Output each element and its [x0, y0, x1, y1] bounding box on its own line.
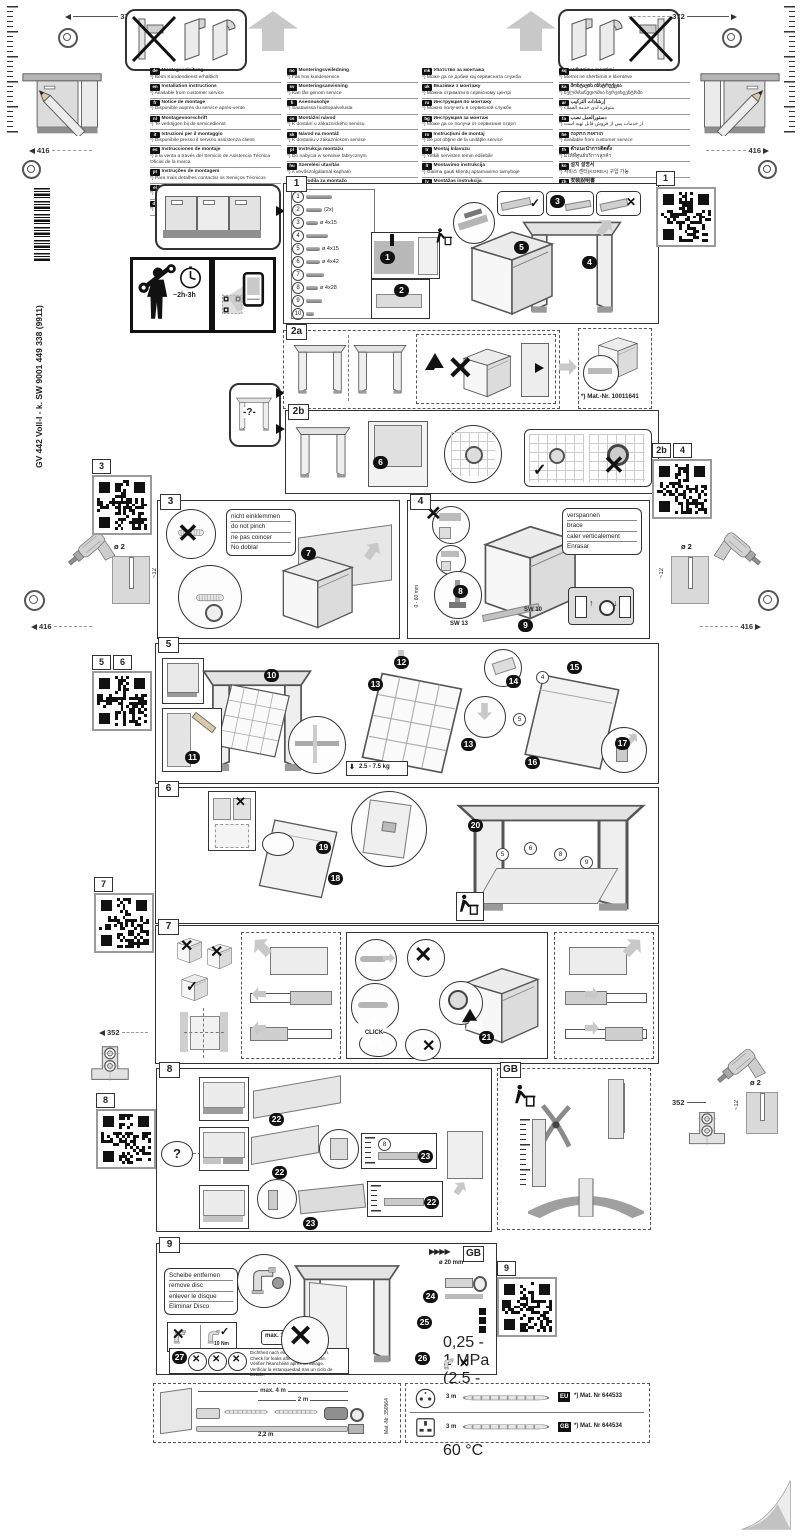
note-line: remove disc: [169, 1281, 233, 1291]
language-entry: itIstruzioni per il montaggio*) Disponib…: [150, 130, 281, 146]
screw-proud-wrong: ✕: [589, 434, 645, 482]
crossed-bracket-sketch: [131, 15, 177, 63]
open-door-sketch: [476, 868, 619, 904]
part-ref-circle: 8: [554, 848, 567, 861]
bracket-detail-circle: [319, 1129, 359, 1169]
qr-finder-pattern: [502, 1282, 517, 1297]
hose-end-fitting: [348, 1424, 364, 1434]
panel-weight-label: 2.5 - 7.5 kg: [359, 764, 390, 770]
cabinet-variants-sketch: ✕ ✕ ✓: [174, 934, 234, 1004]
language-title: Instrucţiuni de montaj: [434, 132, 485, 137]
strip-detail-circle: [453, 202, 495, 244]
strip-part-sketch: [608, 1079, 624, 1139]
qr-label-8: 8: [96, 1093, 115, 1108]
language-title: Инструкция по монтажу: [434, 100, 492, 105]
plinth-rail-sketch: [253, 1075, 341, 1119]
do-not-pinch-note: nicht einklemmendo not pinchne pas coinc…: [226, 509, 296, 556]
language-entry: fiAsennusohje*) Saatavissa huoltopalvelu…: [287, 99, 418, 115]
note-line: brace: [567, 521, 637, 531]
action-badge: 25: [417, 1316, 432, 1329]
language-flag: lt: [422, 163, 432, 170]
qr-finder-pattern: [101, 1149, 116, 1164]
qr-finder-pattern: [537, 1282, 552, 1297]
note-line: Enrasar: [567, 542, 637, 551]
ar-app-box: [212, 257, 276, 333]
part-spec: (2x): [324, 207, 333, 213]
part-ref-circle: 6: [524, 842, 537, 855]
note-line: Scheibe entfernen: [169, 1271, 233, 1281]
action-badge: 13: [368, 678, 383, 691]
language-entry: mkУпатство за монтажа*) Може да се добие…: [422, 67, 553, 83]
qr-label-9: 9: [497, 1261, 516, 1276]
step2a-result-box: *) Mat.-Nr. 10011641: [578, 328, 652, 409]
side-fix-left-box: [241, 932, 341, 1059]
language-entry: noMonteringsveiledning*) Fås hos kundese…: [287, 67, 418, 83]
language-title: Montagevoorschrift: [162, 116, 208, 121]
remove-disc-note: Scheibe entfernenremove discenlever le d…: [164, 1268, 238, 1315]
barcode: [34, 188, 50, 262]
language-note: *) Можна отримати в сервісному центрі: [422, 91, 553, 97]
qr-code: [96, 1109, 156, 1169]
part-icon: [306, 312, 314, 316]
language-note: *) Beim Kundendienst erhältlich: [150, 75, 281, 81]
mat-nr-label: *) Mat. Nr 644534: [574, 1423, 622, 1429]
dim-416-bottom-right: 416: [700, 622, 764, 631]
action-badge: 3: [550, 195, 565, 208]
step8-box: ? 22 22 8 23: [156, 1068, 492, 1232]
ruler-measure-box-1: 8 23: [361, 1133, 437, 1169]
part-ref-circle: 9: [580, 856, 593, 869]
language-note: *) Saatavissa huoltopalvelusta: [287, 106, 418, 112]
clamp-step-icon: [479, 1317, 486, 1324]
arrow-right-icon: [535, 363, 549, 373]
part-spec: ø 4x28: [320, 285, 337, 291]
action-badge: 11: [185, 751, 200, 764]
qr-code: [497, 1277, 557, 1337]
language-title: Installation instructions: [162, 84, 217, 89]
panel-profiles-sketch: [179, 16, 239, 62]
language-title: Udhëzime montimi: [571, 68, 614, 73]
step5-box: 10 11 12 13 13 ⬇ 2.5 - 7.5 kg 14 15 4 5 …: [155, 643, 659, 784]
action-badge: 10: [264, 669, 279, 682]
action-badge: 27: [172, 1351, 187, 1364]
qr-finder-pattern: [97, 480, 112, 495]
language-flag: no: [287, 68, 297, 75]
language-title: Montaj kılavuzu: [434, 147, 470, 152]
cross-icon: ✕: [288, 1319, 313, 1354]
hook-ellipse-detail: [262, 832, 294, 856]
language-flag: uk: [422, 84, 432, 91]
kitchen-variant-1: [199, 1077, 249, 1121]
qr-finder-pattern: [502, 1317, 517, 1332]
door-adjust-icon-box: ↑ ↓: [568, 587, 634, 625]
action-badge: 9: [518, 619, 533, 632]
installation-time-box: ~2h-3h: [130, 257, 212, 333]
step8-tag: 8: [159, 1062, 180, 1078]
language-title: Monteringsveiledning: [299, 68, 350, 73]
template-pencil-box: 11: [162, 708, 222, 772]
language-title: Szerelési utasítás: [299, 163, 340, 168]
part-row: 9: [292, 294, 374, 307]
foot-range-label: 0 - 60 mm: [414, 585, 420, 608]
action-badge: 21: [479, 1031, 494, 1044]
cross-icon: ✕: [626, 195, 636, 209]
language-flag: hu: [287, 163, 297, 170]
dishwasher-iso-sketch: [270, 545, 362, 631]
check-icon: ✓: [530, 196, 540, 210]
language-title: Asennusohje: [299, 100, 330, 105]
step4-tag: 4: [410, 494, 431, 510]
qr-code: [92, 475, 152, 535]
fast-forward-icon: ▶▶▶▶: [429, 1247, 450, 1256]
product-code: GV 442 Voll-I - k. SW 9001 449 338 (9911…: [34, 268, 44, 468]
hole-depth-label: ~12: [659, 568, 665, 578]
note-line: verspannen: [567, 511, 637, 521]
part-number: 6: [292, 256, 304, 268]
corrugated-hose-icon: [224, 1404, 268, 1420]
qr-label-2b: 2b: [652, 443, 671, 458]
part-number: 4: [292, 230, 304, 242]
note-line: do not pinch: [231, 522, 291, 532]
warning-triangle-icon: !: [425, 343, 445, 370]
cross-icon: ✕: [210, 942, 223, 962]
crossed-bracket-sketch: [628, 15, 674, 63]
brace-note: verspannenbracecaler verticalementEnrasa…: [562, 508, 642, 555]
check-icon: ✓: [186, 978, 198, 995]
language-title: Instruções de montagem: [162, 169, 220, 174]
cross-icon: ✕: [177, 520, 199, 546]
qr-finder-pattern: [136, 1114, 151, 1129]
language-title: دستورالعمل نصب: [571, 116, 607, 121]
step5-tag: 5: [158, 637, 179, 653]
language-entry: enInstallation instructions*) Available …: [150, 83, 281, 99]
hole-diameter-label: ø 2: [114, 542, 125, 551]
action-badge: 19: [316, 841, 331, 854]
step1-box: 12(2x)3ø 4x1545ø 4x156ø 4x4278ø 4x28910 …: [283, 183, 659, 324]
front-alignment-sketch: [180, 1008, 228, 1058]
qr-label-3: 3: [92, 459, 111, 474]
arrow-up-left: [248, 11, 298, 51]
screw-detail-circle: [444, 425, 502, 483]
part-row: 2(2x): [292, 203, 374, 216]
qr-finder-pattern: [134, 898, 149, 913]
drain-extension-box: max. 4 m 2 m 2,2 m Mat.-Nr. 350564: [153, 1383, 401, 1443]
action-badge: 5: [514, 241, 529, 254]
drill-hole-mark: [58, 28, 78, 48]
qr-finder-pattern: [696, 192, 711, 207]
hose-cross-circle: ✕: [281, 1316, 329, 1364]
hinge-bracket-sketch: [86, 1040, 134, 1088]
language-note: *) Disponibile presso il servizio assist…: [150, 138, 281, 144]
part-row: 4: [292, 229, 374, 242]
hinge-bracket-sketch: [684, 1106, 730, 1152]
part-spec: ø 4x15: [322, 246, 339, 252]
language-title: Monteringsanvisning: [299, 84, 348, 89]
qr-code: [94, 893, 154, 953]
language-entry: ltMontavimo instrukcija*) Galima gauti k…: [422, 162, 553, 178]
arrow-down-icon: [477, 703, 492, 720]
page-curl: [734, 1476, 798, 1534]
language-flag: mk: [422, 68, 432, 75]
hose-length-label: 2,2 m: [258, 1432, 273, 1438]
part-number: 10: [292, 308, 304, 320]
language-entry: ukВказівки з монтажу*) Можна отримати в …: [422, 83, 553, 99]
clip-detail-circle: [257, 1179, 297, 1219]
part-row: 6ø 4x42: [292, 255, 374, 268]
part-row: 10: [292, 307, 374, 320]
language-note: *) Можно получить в сервисной службе: [422, 106, 553, 112]
detail-strip-apply: 1: [371, 232, 440, 279]
language-flag: ko: [559, 163, 569, 170]
clamp-step-icon: [479, 1326, 486, 1333]
wrong-clip-circle: ✕: [405, 1029, 441, 1061]
region-badge: GB: [558, 1422, 571, 1432]
action-badge: 26: [415, 1352, 430, 1365]
part-icon: [306, 234, 328, 238]
language-entry: csMontážní návod*) K dostání u zákaznick…: [287, 115, 418, 131]
note-line: No doblar: [231, 543, 291, 552]
hose-connector-sketch: [196, 1408, 220, 1419]
check-icon: ✓: [220, 1325, 229, 1338]
niche-question-box: -?-: [229, 383, 281, 447]
strip-screw-box: 3: [546, 191, 594, 216]
torque-ok-label: 10 Nm: [214, 1341, 229, 1347]
action-badge: 13: [461, 738, 476, 751]
language-entry: ruИнструкция по монтажу*) Можно получить…: [422, 99, 553, 115]
language-title: Návod na montáž: [299, 132, 340, 137]
part-row: 7: [292, 268, 374, 281]
drain-connection-sketch: [441, 1270, 491, 1306]
question-label: -?-: [243, 407, 256, 418]
language-title: Montážní návod: [299, 116, 336, 121]
language-entry: faدستورالعمل نصب*) از خدمات پس از فروش ق…: [559, 115, 690, 131]
qr-finder-pattern: [657, 464, 672, 479]
kitchen-variant-3: [199, 1185, 249, 1229]
warning-triangle-icon: !: [462, 1001, 478, 1023]
kitchen-overview-box: [155, 184, 281, 250]
language-entry: skNávod na montáž*) K dostaniu v zákazní…: [287, 130, 418, 146]
panel-weight-box: ⬇ 2.5 - 7.5 kg: [346, 761, 408, 776]
arrow-right-icon: [559, 359, 577, 375]
language-note: *) available from customer service: [559, 138, 690, 144]
cross-icon: ✕: [172, 1325, 185, 1343]
part-spec: ø 4x42: [322, 259, 339, 265]
qr-label-4: 4: [673, 443, 692, 458]
note-line: caler verticalement: [567, 532, 637, 542]
qr-step7: 7: [94, 874, 154, 953]
hole-depth-label: ~12: [734, 1100, 740, 1110]
template-grid-sketch: [214, 678, 294, 762]
wrench-size-label: SW 13: [450, 621, 468, 627]
action-badge: 4: [582, 256, 597, 269]
qr-finder-pattern: [132, 676, 147, 691]
qr-step1: 1: [656, 168, 716, 247]
language-entry: trMontaj kılavuzu*) Yetkili servisten te…: [422, 146, 553, 162]
plinth-rail-sketch: [251, 1125, 319, 1165]
drill-hole-mark: [722, 28, 742, 48]
plinth-bracket-sketch: [298, 1184, 366, 1215]
screw-ok-wrong-box: ✓ ✕: [524, 429, 652, 487]
hinge-dim-cluster-left: 352: [84, 1028, 154, 1090]
plinth-panel-sketch: [447, 1131, 483, 1179]
language-note: *) Merret në shërbimin e klientëve: [559, 75, 690, 81]
action-badge: 17: [615, 737, 630, 750]
aerator-detail-circle: [237, 1254, 291, 1308]
power-cord-sketch: [462, 1388, 550, 1408]
language-flag: sv: [287, 84, 297, 91]
qr-finder-pattern: [97, 676, 112, 691]
action-badge: 12: [394, 656, 409, 669]
qr-code: [656, 187, 716, 247]
installation-manual-page: 372 372: [0, 0, 802, 1536]
action-badge: 14: [506, 675, 521, 688]
drill-hole-mark: [758, 590, 779, 611]
action-badge: 23: [303, 1217, 318, 1230]
part-row: 8ø 4x28: [292, 281, 374, 294]
qr-finder-pattern: [661, 192, 676, 207]
step2a-box: ! ✕: [283, 330, 560, 409]
part-icon: [306, 247, 320, 251]
cross-icon: ✕: [603, 450, 625, 481]
step3-tag: 3: [160, 494, 181, 510]
pinched-hose-warning-circle: ✕: [166, 509, 216, 559]
screw-position-detail-box: ✕: [208, 791, 256, 851]
qr-label-6: 6: [113, 655, 132, 670]
part-number: 7: [292, 269, 304, 281]
step2b-tag: 2b: [288, 404, 309, 420]
curved-plinth-sketch: [528, 1169, 644, 1223]
qr-code: [92, 671, 152, 731]
gb-tag: GB: [500, 1062, 521, 1078]
action-badge: 24: [423, 1290, 438, 1303]
dim-416-bottom-left: 416: [28, 622, 92, 631]
parts-list: 12(2x)3ø 4x1545ø 4x156ø 4x4278ø 4x28910: [291, 189, 375, 319]
front-panel-sketch: [256, 804, 342, 912]
language-note: *) Kan fås genom service: [287, 91, 418, 97]
mat-nr-label: Mat.-Nr. 350564: [384, 1392, 390, 1434]
language-flag: sq: [559, 68, 569, 75]
language-note: *) a la venta a través del Servicio de A…: [150, 154, 281, 166]
part-number: 9: [292, 295, 304, 307]
cord-length-label: 3 m: [446, 1394, 456, 1400]
ruler-measure-box-2: 22: [367, 1181, 443, 1217]
language-note: *) Fås hos kundeservice: [287, 75, 418, 81]
qr-finder-pattern: [99, 898, 114, 913]
mat-nr-label: *) Mat.-Nr. 10011641: [581, 393, 639, 400]
side-fix-center-box: ✕ ! CLICK ✕ 21: [346, 932, 548, 1059]
language-note: *) Available from customer service: [150, 91, 281, 97]
step9-box: ▶▶▶▶ GB Scheibe entfernenremove discenle…: [156, 1243, 497, 1375]
part-icon: [306, 260, 320, 264]
language-flag: ka: [559, 84, 569, 91]
language-flag: pt: [150, 169, 160, 176]
detail-strip-click: 2: [371, 279, 430, 319]
action-badge: 2: [394, 284, 409, 297]
part-icon: [306, 299, 322, 303]
drill-hole-mark: [758, 160, 777, 179]
check-icon: ✓: [533, 460, 546, 480]
part-ref-circle: 5: [496, 848, 509, 861]
language-note: *) Se pot obţine de la unităţile service: [422, 138, 553, 144]
hole-depth-sketch: [112, 556, 150, 604]
qr-finder-pattern: [692, 464, 707, 479]
strip-wrong-box: ✕: [596, 191, 641, 216]
language-flag: en: [150, 84, 160, 91]
step1-tag: 1: [286, 176, 307, 192]
language-entry: nlMontagevoorschrift*) Te verkrijgen bij…: [150, 115, 281, 131]
part-number: 3: [292, 217, 304, 229]
language-entry: roInstrucţiuni de montaj*) Se pot obţine…: [422, 130, 553, 146]
hole-depth-sketch: [746, 1092, 778, 1134]
qr-finder-pattern: [97, 515, 112, 530]
language-title: הוראות התקנה: [571, 132, 604, 137]
part-icon: [306, 273, 324, 277]
language-title: Instrucciones de montaje: [162, 147, 221, 152]
power-cord-box: 3 m EU *) Mat. Nr 644533 3 m GB *) Mat. …: [405, 1383, 650, 1443]
clock-icon: [179, 266, 202, 289]
language-entry: bgИнструкция за монтаж*) Може да се полу…: [422, 115, 553, 131]
language-title: Montageanleitung: [162, 68, 204, 73]
language-note: *) Yetkili servisten temin edilebilir: [422, 154, 553, 160]
drill-hole-mark: [24, 590, 45, 611]
qr-finder-pattern: [101, 1114, 116, 1129]
language-note: *) Може да се добие кај сервисната служб…: [422, 75, 553, 81]
gb-plinth-box: [497, 1068, 651, 1230]
side-fix-right-box: [554, 932, 654, 1059]
language-note: *) A vevőszolgálatnál kapható: [287, 170, 418, 176]
step7-tag: 7: [158, 919, 179, 935]
qr-step8: 8: [96, 1090, 156, 1169]
qr-finder-pattern: [99, 933, 114, 948]
part-number: 5: [292, 243, 304, 255]
hose-clamp-icon: [350, 1408, 364, 1422]
question-cloud: ?: [161, 1141, 193, 1167]
template-edge-circle: [288, 716, 346, 774]
note-line: Verificar la estanqueidad tras un ciclo …: [250, 1367, 346, 1378]
note-line: ne pas coincer: [231, 533, 291, 543]
action-badge: 23: [418, 1150, 433, 1163]
cross-icon: ✕: [422, 1036, 435, 1056]
action-badge: 15: [567, 661, 582, 674]
language-entry: deMontageanleitung*) Beim Kundendienst e…: [150, 67, 281, 83]
time-estimate-label: ~2h-3h: [173, 292, 196, 299]
cord-length-label: 3 m: [446, 1424, 456, 1430]
language-title: Инструкция за монтаж: [434, 116, 488, 121]
strip-detail-circle: [583, 355, 619, 391]
action-badge: 6: [373, 456, 388, 469]
strip-ok-box: ✓: [497, 191, 544, 216]
action-badge: 22: [269, 1113, 284, 1126]
part-number: 2: [292, 204, 304, 216]
smartphone-scan-icon: [217, 262, 269, 324]
drill-icon: [710, 1032, 782, 1098]
qr-code: [652, 459, 712, 519]
qr-finder-pattern: [661, 227, 676, 242]
niche-sketch: [292, 337, 348, 401]
language-note: *) متوفرة لدى خدمة العملاء: [559, 106, 690, 112]
hole-diameter-label: ø 2: [681, 542, 692, 551]
qr-finder-pattern: [97, 711, 112, 726]
hose-diameter-label: ø 20 mm: [439, 1260, 463, 1266]
language-entry: frNotice de montage*) Disponible auprès …: [150, 99, 281, 115]
cross-icon: ✕: [180, 936, 193, 956]
part-icon: [306, 221, 318, 225]
screw-flush-ok: ✓: [529, 434, 584, 482]
region-badge: EU: [558, 1392, 570, 1402]
language-title: მონტაჟის ინსტრუქცია: [571, 84, 622, 89]
language-title: Notice de montage: [162, 100, 206, 105]
language-note: *) Te verkrijgen bij de servicedienst: [150, 122, 281, 128]
